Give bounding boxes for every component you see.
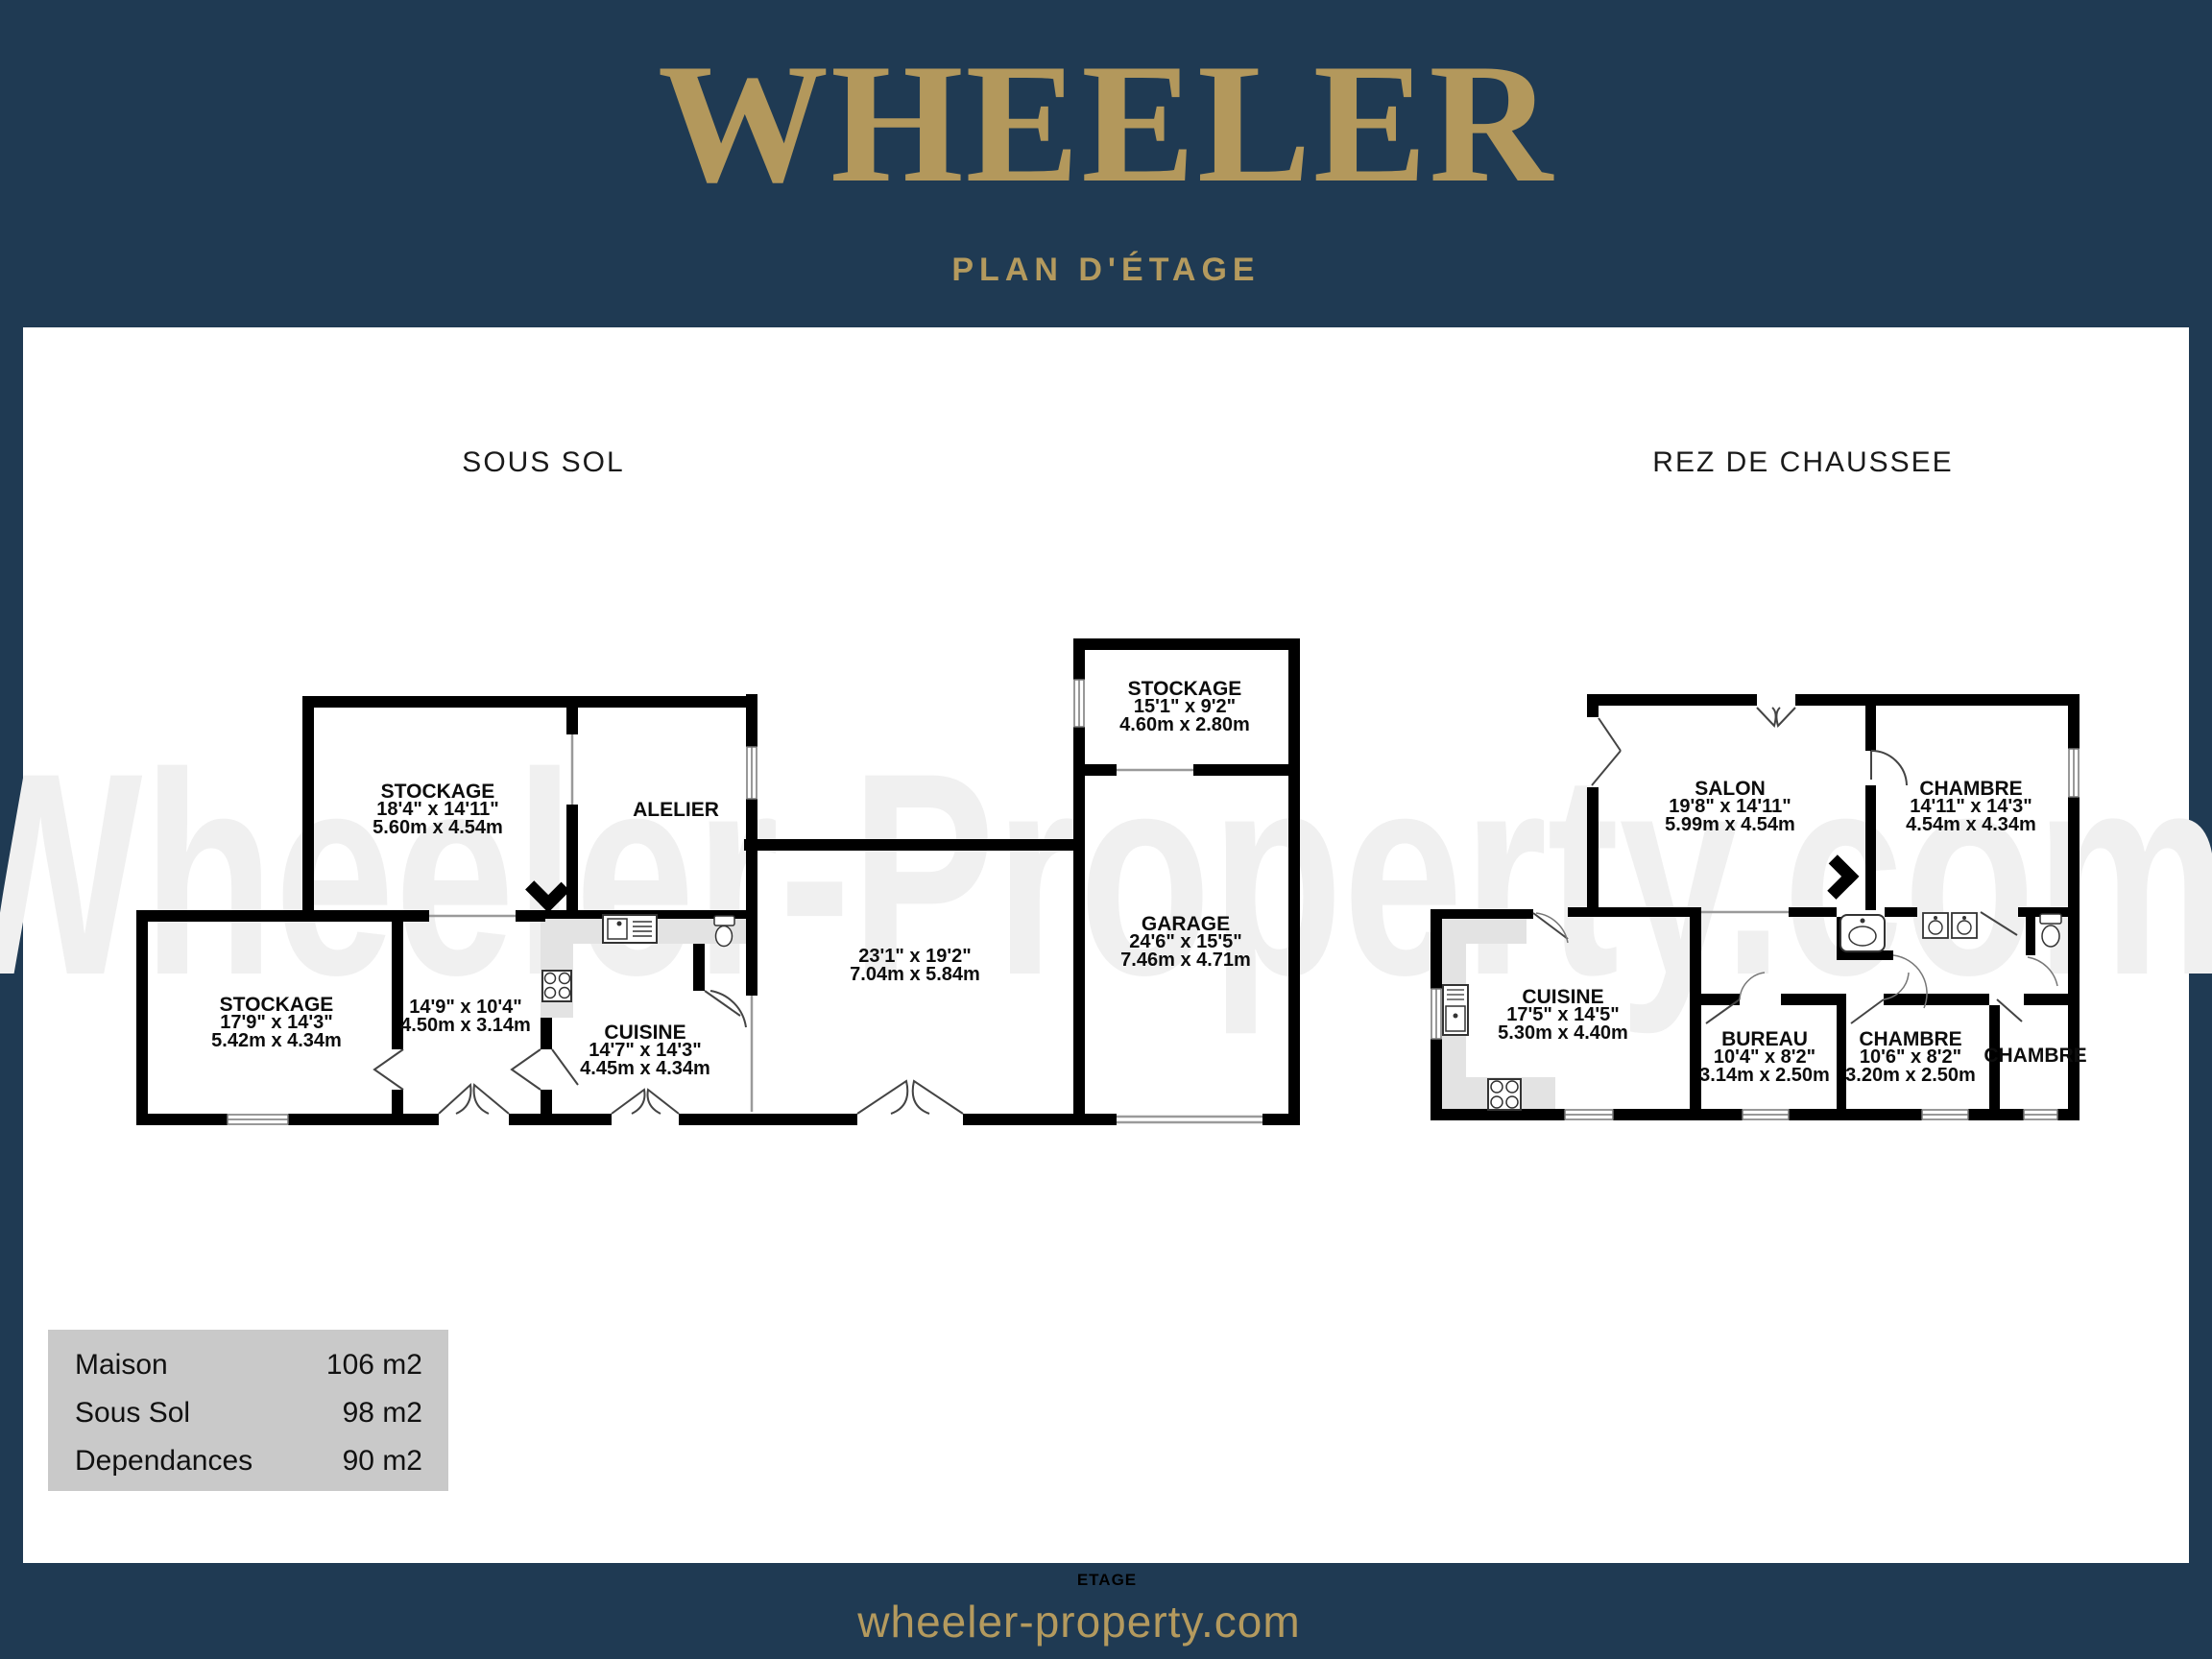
toilet-icon bbox=[2040, 914, 2061, 947]
legend-row: Maison 106 m2 bbox=[75, 1349, 422, 1382]
window-icon bbox=[747, 747, 757, 799]
room-label-bigroom: 23'1" x 19'2" 7.04m x 5.84m bbox=[850, 948, 980, 984]
plan-title-etage: ETAGE bbox=[1059, 1571, 1155, 1590]
room-label-salon: SALON 19'8" x 14'11" 5.99m x 4.54m bbox=[1665, 780, 1795, 834]
room-label-bureau: BUREAU 10'4" x 8'2" 3.14m x 2.50m bbox=[1699, 1030, 1830, 1085]
rdc-doors bbox=[1533, 708, 2057, 1023]
window-icon bbox=[1743, 1110, 1789, 1119]
stove-icon bbox=[542, 971, 571, 1001]
legend-row: Sous Sol 98 m2 bbox=[75, 1397, 422, 1430]
room-label-chambre-1: CHAMBRE 14'11" x 14'3" 4.54m x 4.34m bbox=[1906, 780, 2036, 834]
legend-row: Dependances 90 m2 bbox=[75, 1445, 422, 1478]
window-icon bbox=[1565, 1110, 1613, 1119]
room-label-cuisine-soussol: CUISINE 14'7" x 14'3" 4.45m x 4.34m bbox=[580, 1023, 710, 1078]
room-label-stockage-3: STOCKAGE 15'1" x 9'2" 4.60m x 2.80m bbox=[1119, 680, 1250, 734]
basin-icon bbox=[1923, 913, 1948, 938]
window-icon bbox=[1922, 1110, 1968, 1119]
vanity-sink-icon bbox=[1840, 915, 1885, 951]
room-label-room-149: 14'9" x 10'4" 4.50m x 3.14m bbox=[400, 998, 531, 1035]
stairs-icon bbox=[525, 868, 570, 913]
room-label-alelier: ALELIER bbox=[633, 801, 719, 819]
window-icon bbox=[1074, 680, 1084, 727]
toilet-icon bbox=[714, 916, 734, 947]
area-legend: Maison 106 m2 Sous Sol 98 m2 Dependances… bbox=[48, 1330, 448, 1491]
window-icon bbox=[2069, 749, 2079, 797]
window-icon bbox=[1431, 989, 1441, 1039]
basin-icon bbox=[1952, 913, 1977, 938]
room-label-stockage-1: STOCKAGE 18'4" x 14'11" 5.60m x 4.54m bbox=[373, 782, 503, 837]
sink-icon bbox=[1443, 985, 1468, 1035]
room-label-stockage-2: STOCKAGE 17'9" x 14'3" 5.42m x 4.34m bbox=[211, 996, 342, 1050]
room-label-cuisine-rdc: CUISINE 17'5" x 14'5" 5.30m x 4.40m bbox=[1498, 988, 1628, 1043]
sous-sol-fixtures bbox=[541, 915, 746, 1018]
room-label-garage: GARAGE 24'6" x 15'5" 7.46m x 4.71m bbox=[1120, 915, 1251, 970]
footer-website: wheeler-property.com bbox=[0, 1596, 2158, 1647]
sink-icon bbox=[603, 915, 657, 943]
stairs-icon bbox=[1815, 854, 1860, 900]
room-label-chambre-2: CHAMBRE 10'6" x 8'2" 3.20m x 2.50m bbox=[1845, 1030, 1976, 1085]
room-label-chambre-3: CHAMBRE bbox=[1984, 1046, 2086, 1065]
stove-icon bbox=[1488, 1079, 1521, 1110]
window-icon bbox=[228, 1115, 288, 1124]
window-icon bbox=[2024, 1110, 2057, 1119]
